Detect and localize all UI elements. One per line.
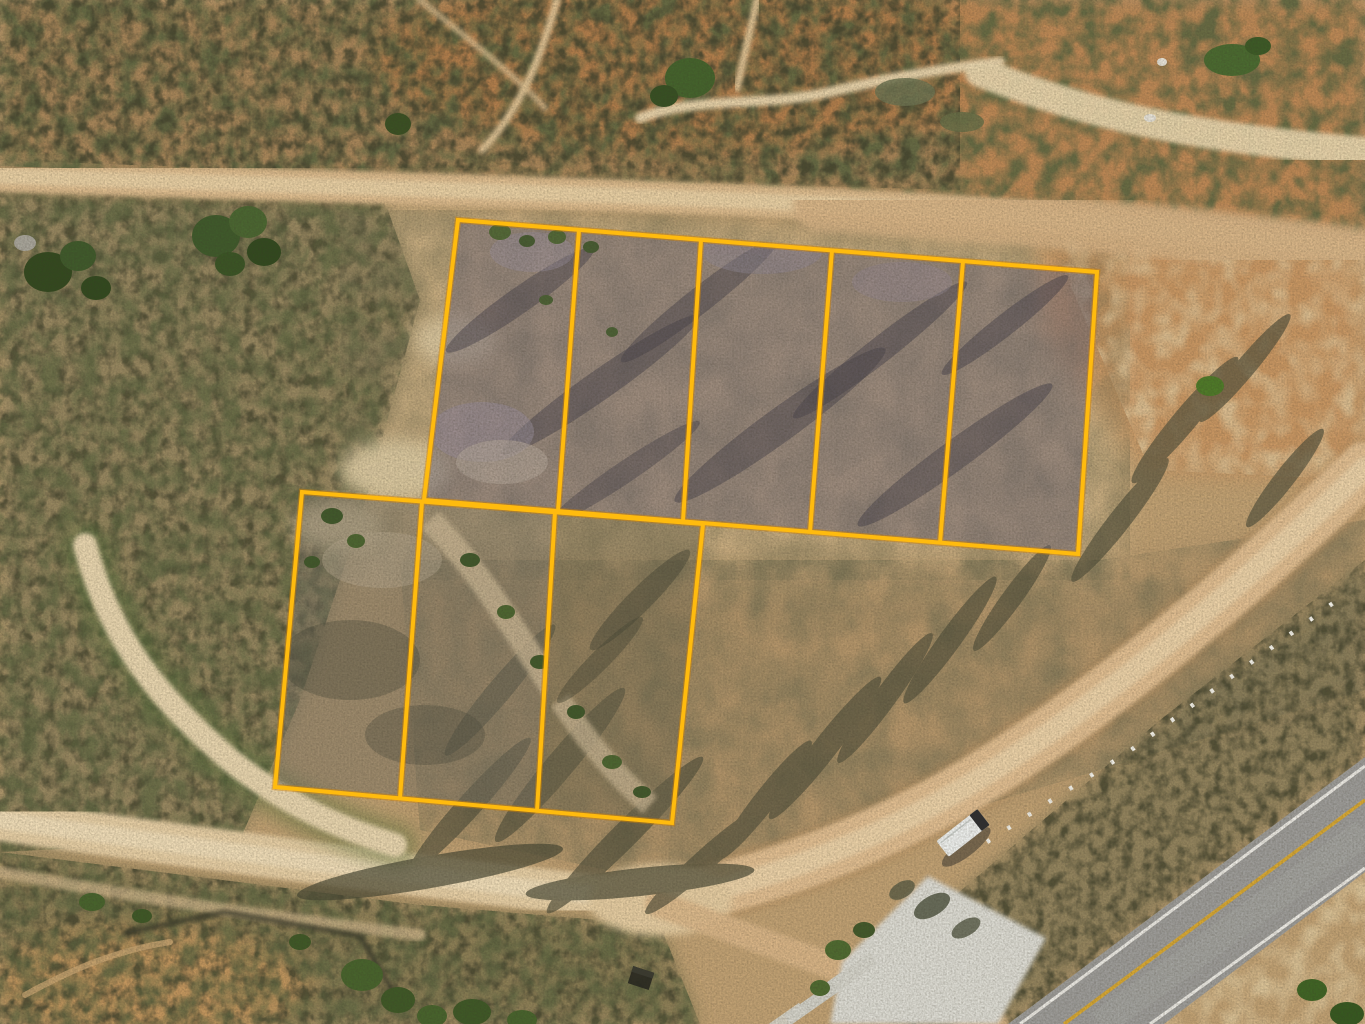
aerial-photo-canvas	[0, 0, 1365, 1024]
aerial-photo	[0, 0, 1365, 1024]
